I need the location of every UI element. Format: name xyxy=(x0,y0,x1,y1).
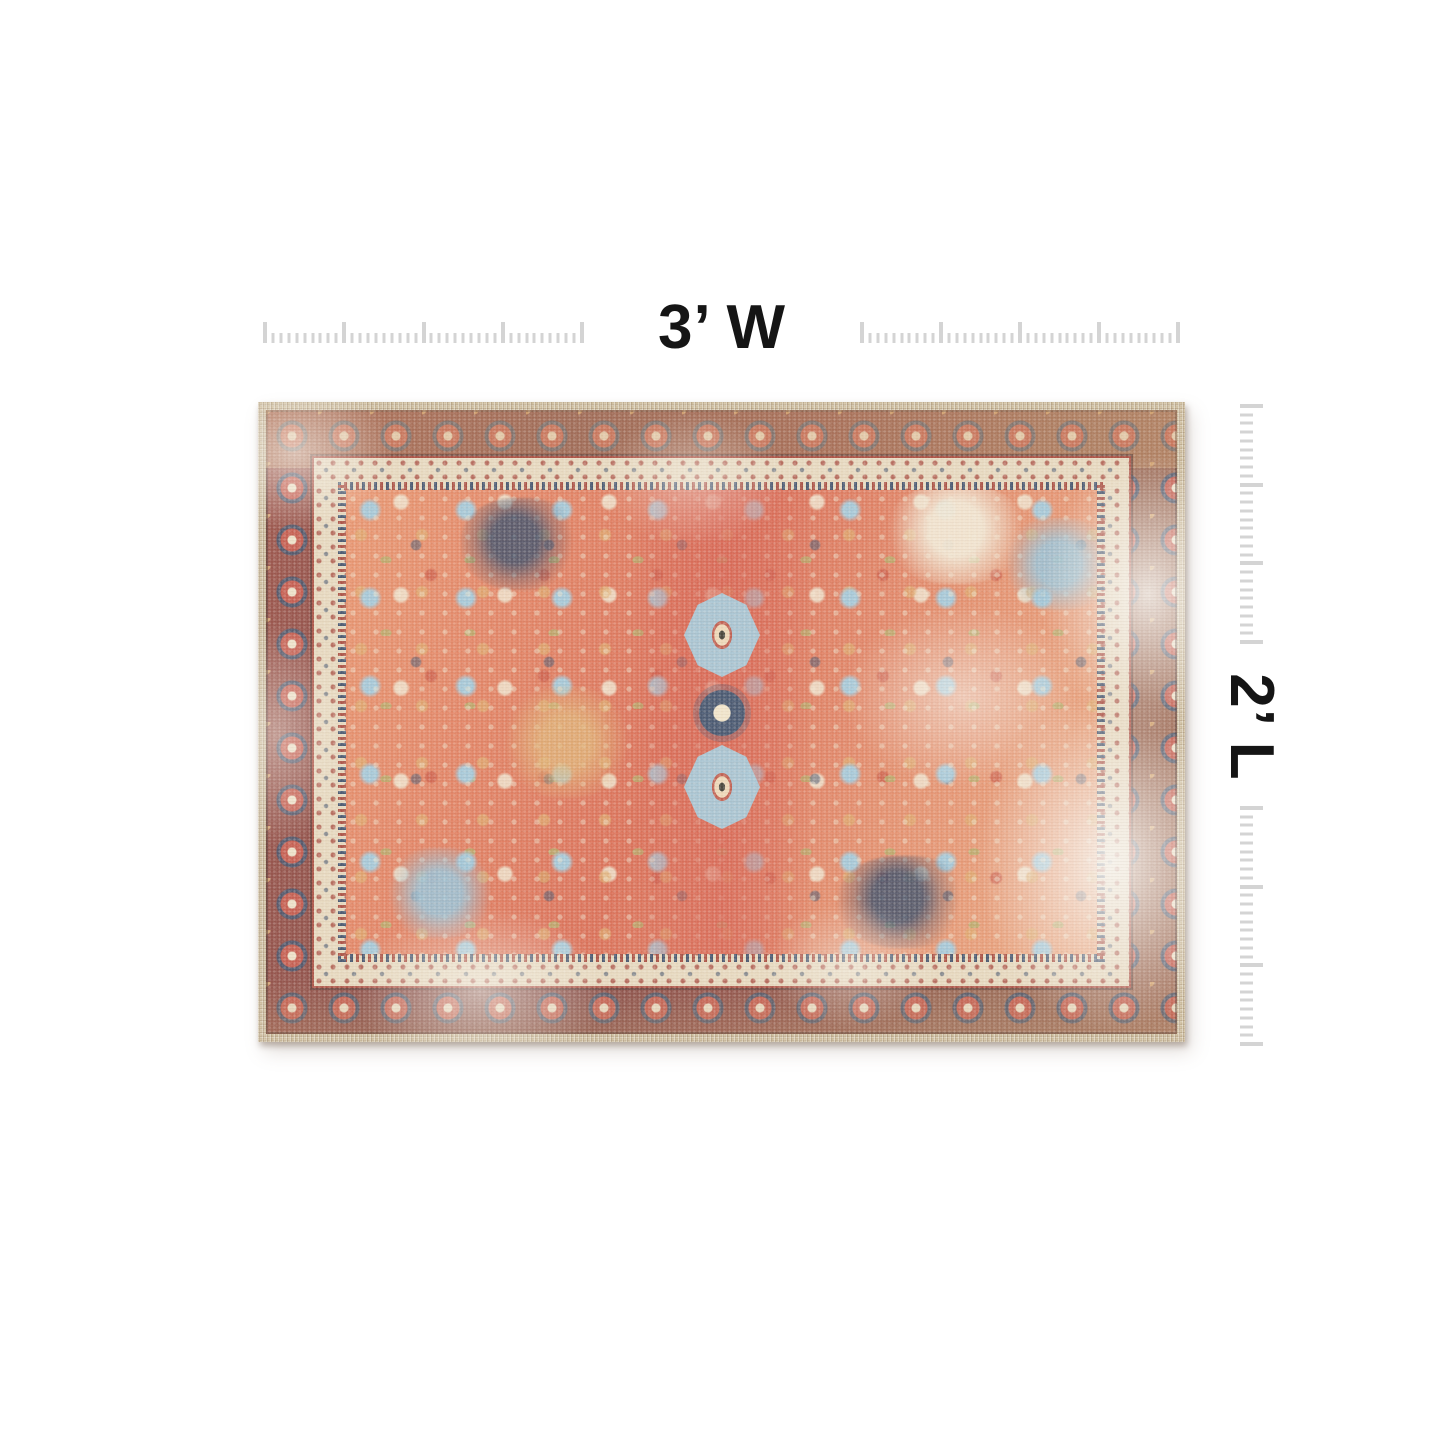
ruler-tick xyxy=(1240,588,1253,591)
product-dimension-image: 3’ W 2’ L xyxy=(0,0,1445,1445)
ruler-tick xyxy=(1018,322,1022,343)
ruler-tick xyxy=(477,333,480,343)
ruler-tick xyxy=(1240,509,1253,512)
ruler-tick xyxy=(1176,322,1180,343)
ruler-tick xyxy=(1105,333,1108,343)
ruler-tick xyxy=(1026,333,1029,343)
ruler-tick xyxy=(1240,955,1253,958)
ruler-tick xyxy=(422,322,426,343)
ruler-tick xyxy=(430,333,433,343)
ruler-tick xyxy=(1121,333,1124,343)
rug-motif-cluster xyxy=(838,856,970,948)
ruler-tick xyxy=(1240,824,1253,827)
ruler-tick xyxy=(390,333,393,343)
rug-comb-border-right xyxy=(1097,482,1105,962)
ruler-tick xyxy=(271,333,274,343)
ruler-tick xyxy=(1240,815,1253,818)
ruler-tick xyxy=(979,333,982,343)
ruler-tick xyxy=(1240,518,1253,521)
ruler-tick xyxy=(327,333,330,343)
ruler-tick xyxy=(1240,448,1253,451)
ruler-tick xyxy=(1240,973,1253,976)
ruler-tick xyxy=(287,333,290,343)
rug-center-medallion xyxy=(684,593,760,677)
ruler-tick xyxy=(1240,561,1263,565)
length-ruler-bottom-segment xyxy=(1240,808,1263,1044)
ruler-tick xyxy=(438,333,441,343)
ruler-tick xyxy=(557,333,560,343)
ruler-tick xyxy=(1240,1008,1253,1011)
ruler-tick xyxy=(1240,1034,1253,1037)
ruler-tick xyxy=(517,333,520,343)
ruler-tick xyxy=(263,322,267,343)
ruler-tick xyxy=(987,333,990,343)
width-ruler-left-segment xyxy=(265,322,582,343)
ruler-tick xyxy=(374,333,377,343)
ruler-tick xyxy=(1240,1016,1253,1019)
ruler-tick xyxy=(1169,333,1172,343)
rug-center-rosette xyxy=(693,684,751,742)
ruler-tick xyxy=(963,333,966,343)
ruler-tick xyxy=(501,322,505,343)
ruler-tick xyxy=(916,333,919,343)
ruler-tick xyxy=(900,333,903,343)
ruler-tick xyxy=(1240,606,1253,609)
rug-comb-border-top xyxy=(338,482,1105,490)
ruler-tick xyxy=(1240,474,1253,477)
ruler-tick xyxy=(382,333,385,343)
ruler-tick xyxy=(509,333,512,343)
ruler-tick xyxy=(1145,333,1148,343)
rug-motif-cluster xyxy=(384,848,496,938)
ruler-tick xyxy=(295,333,298,343)
ruler-tick xyxy=(1240,868,1253,871)
ruler-tick xyxy=(1161,333,1164,343)
ruler-tick xyxy=(454,333,457,343)
ruler-tick xyxy=(939,322,943,343)
ruler-tick xyxy=(1240,876,1253,879)
ruler-tick xyxy=(1153,333,1156,343)
ruler-tick xyxy=(1058,333,1061,343)
ruler-tick xyxy=(1240,492,1253,495)
ruler-tick xyxy=(1240,501,1253,504)
ruler-tick xyxy=(1240,911,1253,914)
ruler-tick xyxy=(892,333,895,343)
ruler-tick xyxy=(868,333,871,343)
ruler-tick xyxy=(908,333,911,343)
length-ruler-top-segment xyxy=(1240,406,1263,642)
ruler-tick xyxy=(1240,527,1253,530)
ruler-tick xyxy=(493,333,496,343)
ruler-tick xyxy=(932,333,935,343)
ruler-tick xyxy=(1240,553,1253,556)
ruler-tick xyxy=(955,333,958,343)
ruler-tick xyxy=(1240,938,1253,941)
width-ruler-right-segment xyxy=(862,322,1178,343)
ruler-tick xyxy=(1240,999,1253,1002)
ruler-tick xyxy=(549,333,552,343)
ruler-tick xyxy=(1240,929,1253,932)
ruler-tick xyxy=(1113,333,1116,343)
ruler-tick xyxy=(1240,404,1263,408)
ruler-tick xyxy=(1240,1042,1263,1046)
ruler-tick xyxy=(876,333,879,343)
ruler-tick xyxy=(1050,333,1053,343)
ruler-tick xyxy=(1240,903,1253,906)
ruler-tick xyxy=(462,333,465,343)
rug-comb-border-left xyxy=(338,482,346,962)
ruler-tick xyxy=(1066,333,1069,343)
ruler-tick xyxy=(335,333,338,343)
ruler-tick xyxy=(580,322,584,343)
rug-motif-cluster xyxy=(1001,518,1097,610)
ruler-tick xyxy=(995,333,998,343)
ruler-tick xyxy=(342,322,346,343)
rug-photo xyxy=(258,402,1185,1042)
ruler-tick xyxy=(1011,333,1014,343)
ruler-tick xyxy=(311,333,314,343)
ruler-tick xyxy=(1240,1025,1253,1028)
ruler-tick xyxy=(303,333,306,343)
ruler-tick xyxy=(485,333,488,343)
ruler-tick xyxy=(446,333,449,343)
ruler-tick xyxy=(525,333,528,343)
ruler-tick xyxy=(860,322,864,343)
ruler-tick xyxy=(1240,806,1263,810)
ruler-tick xyxy=(1137,333,1140,343)
ruler-tick xyxy=(1240,571,1253,574)
ruler-tick xyxy=(1240,981,1253,984)
ruler-tick xyxy=(947,333,950,343)
ruler-tick xyxy=(1082,333,1085,343)
ruler-tick xyxy=(1240,990,1253,993)
ruler-tick xyxy=(1240,841,1253,844)
ruler-tick xyxy=(1240,483,1263,487)
ruler-tick xyxy=(414,333,417,343)
ruler-tick xyxy=(1240,422,1253,425)
ruler-tick xyxy=(1240,466,1253,469)
ruler-tick xyxy=(971,333,974,343)
rug-body xyxy=(266,410,1177,1034)
ruler-tick xyxy=(279,333,282,343)
ruler-tick xyxy=(367,333,370,343)
ruler-tick xyxy=(1240,579,1253,582)
width-dimension-label: 3’ W xyxy=(612,297,832,359)
ruler-tick xyxy=(1129,333,1132,343)
ruler-tick xyxy=(1240,597,1253,600)
ruler-tick xyxy=(1003,333,1006,343)
ruler-tick xyxy=(1240,457,1253,460)
ruler-tick xyxy=(1240,920,1253,923)
ruler-tick xyxy=(1240,413,1253,416)
ruler-tick xyxy=(1240,946,1253,949)
rug-field xyxy=(346,490,1097,954)
rug-comb-border-bottom xyxy=(338,954,1105,962)
ruler-tick xyxy=(924,333,927,343)
ruler-tick xyxy=(319,333,322,343)
ruler-tick xyxy=(1240,431,1253,434)
ruler-tick xyxy=(351,333,354,343)
ruler-tick xyxy=(1074,333,1077,343)
ruler-tick xyxy=(1240,439,1253,442)
rug-center-medallion xyxy=(684,745,760,829)
ruler-tick xyxy=(1240,963,1263,967)
ruler-tick xyxy=(1042,333,1045,343)
ruler-tick xyxy=(1240,536,1253,539)
rug-motif-cluster xyxy=(461,498,581,590)
ruler-tick xyxy=(398,333,401,343)
rug-motif-cluster xyxy=(504,686,629,798)
ruler-tick xyxy=(1240,859,1253,862)
ruler-tick xyxy=(406,333,409,343)
ruler-tick xyxy=(565,333,568,343)
ruler-tick xyxy=(541,333,544,343)
ruler-tick xyxy=(1240,544,1253,547)
ruler-tick xyxy=(1097,322,1101,343)
ruler-tick xyxy=(884,333,887,343)
length-dimension-label: 2’ L xyxy=(1220,617,1282,837)
ruler-tick xyxy=(470,333,473,343)
ruler-tick xyxy=(359,333,362,343)
ruler-tick xyxy=(1240,833,1253,836)
ruler-tick xyxy=(1090,333,1093,343)
ruler-tick xyxy=(1240,850,1253,853)
ruler-tick xyxy=(1240,894,1253,897)
ruler-tick xyxy=(1034,333,1037,343)
ruler-tick xyxy=(573,333,576,343)
ruler-tick xyxy=(533,333,536,343)
ruler-tick xyxy=(1240,885,1263,889)
